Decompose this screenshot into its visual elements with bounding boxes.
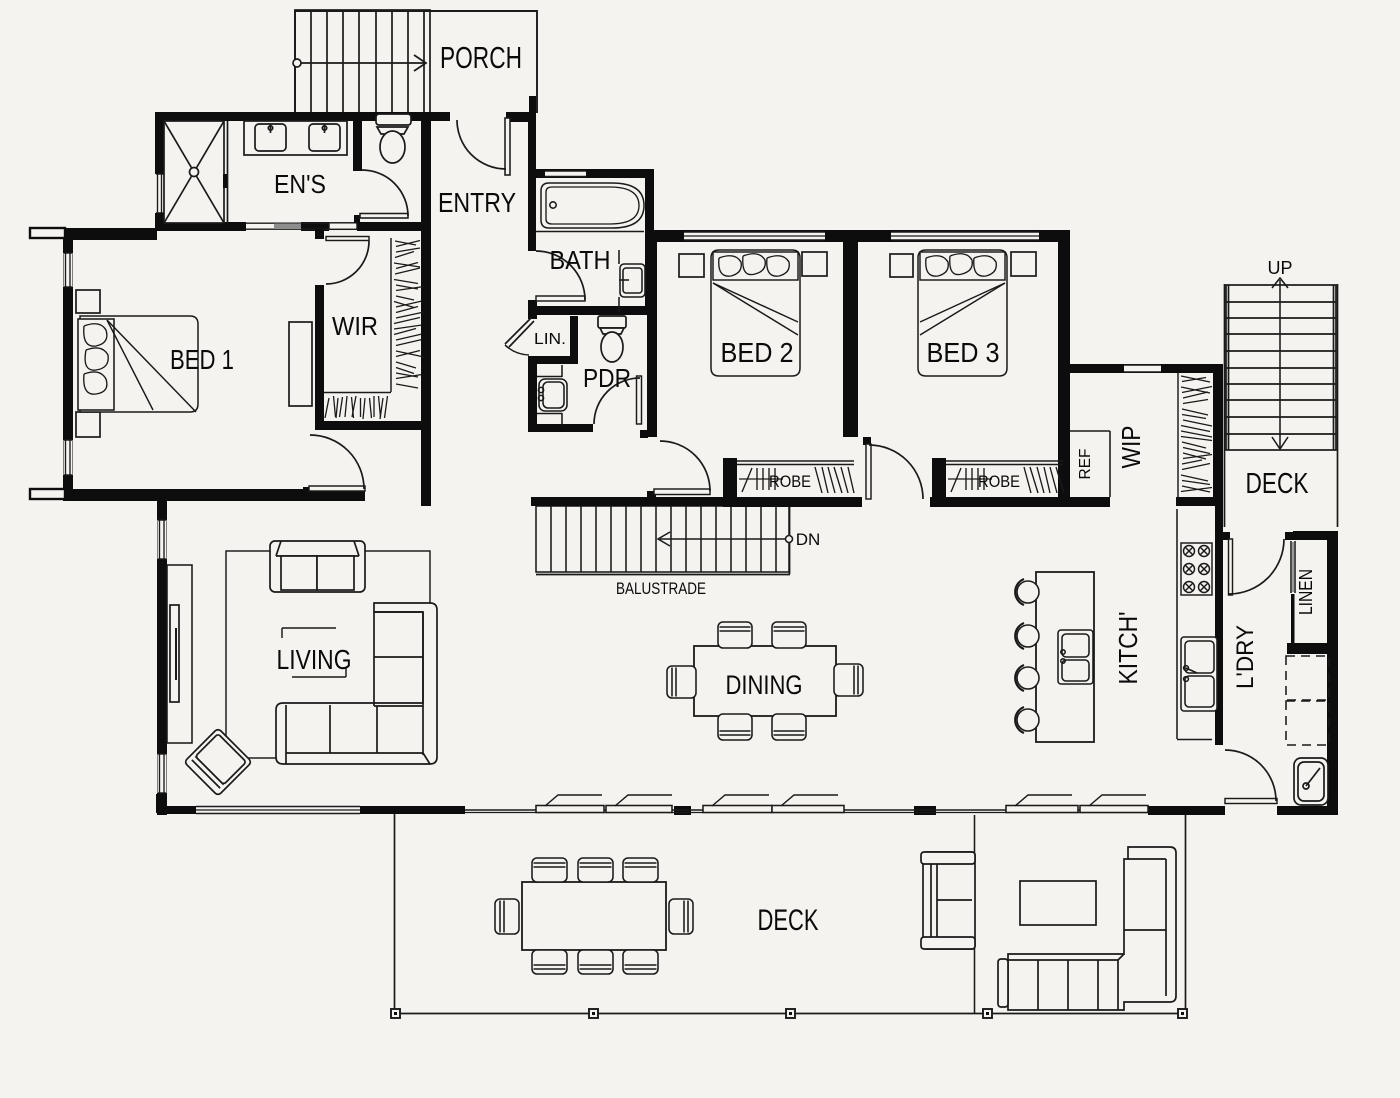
svg-text:DECK: DECK xyxy=(758,904,819,937)
svg-text:BALUSTRADE: BALUSTRADE xyxy=(616,580,706,598)
svg-text:LIN.: LIN. xyxy=(534,331,566,348)
svg-text:PDR: PDR xyxy=(583,363,631,393)
svg-text:ROBE: ROBE xyxy=(978,472,1020,491)
svg-text:DN: DN xyxy=(796,530,821,549)
svg-text:ROBE: ROBE xyxy=(769,472,811,491)
svg-text:BATH: BATH xyxy=(550,245,611,275)
svg-text:LINEN: LINEN xyxy=(1296,569,1316,615)
svg-text:ENTRY: ENTRY xyxy=(438,187,516,218)
svg-text:DECK: DECK xyxy=(1246,468,1310,500)
svg-text:UP: UP xyxy=(1267,258,1292,278)
svg-text:L'DRY: L'DRY xyxy=(1232,625,1259,689)
svg-text:BED 3: BED 3 xyxy=(927,337,1000,368)
svg-text:BED 1: BED 1 xyxy=(170,344,234,375)
svg-text:EN'S: EN'S xyxy=(274,169,326,199)
svg-text:KITCH': KITCH' xyxy=(1113,612,1143,685)
svg-text:WIP: WIP xyxy=(1116,426,1146,469)
svg-text:PORCH: PORCH xyxy=(440,40,522,75)
svg-text:WIR: WIR xyxy=(332,311,378,341)
svg-text:DINING: DINING xyxy=(726,670,803,700)
svg-text:LIVING: LIVING xyxy=(277,644,352,675)
svg-text:BED 2: BED 2 xyxy=(721,337,794,368)
svg-text:REF: REF xyxy=(1077,448,1094,479)
